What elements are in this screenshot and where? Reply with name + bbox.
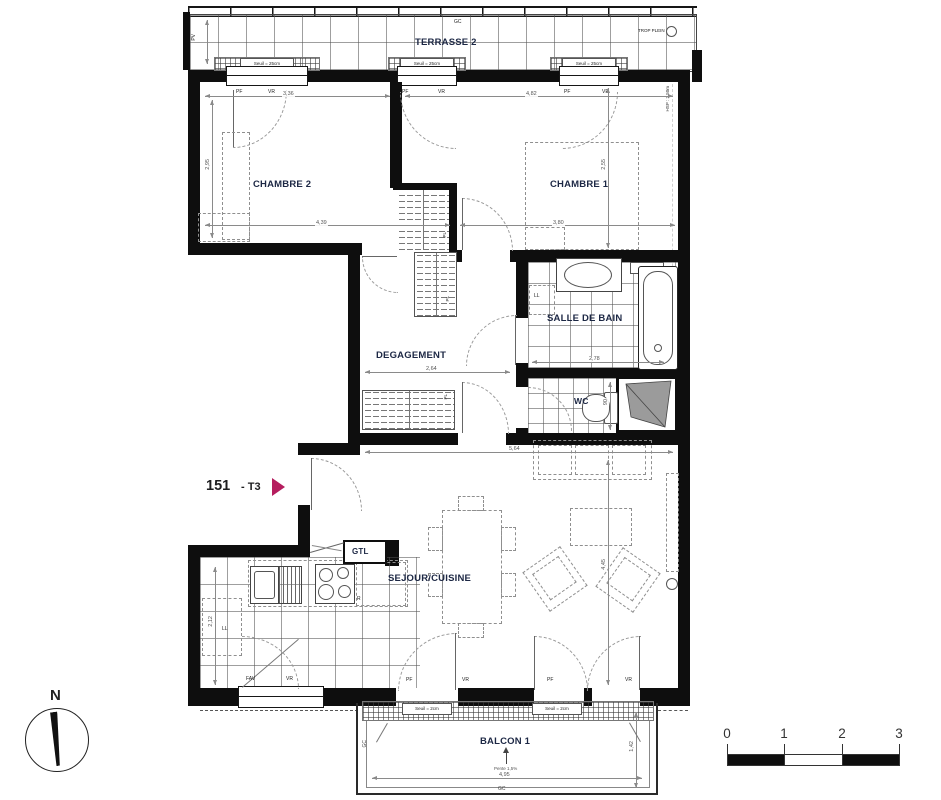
vr-label: VR	[462, 678, 469, 683]
shaft-hatch	[626, 381, 671, 427]
dim-label: 2,78	[588, 356, 601, 362]
door-arc-sejour-b2	[587, 636, 641, 691]
wall-deg-bottom	[348, 433, 458, 445]
dim-label: 4,39	[315, 220, 328, 226]
ll-sdb-label: LL	[534, 294, 540, 299]
door-arc-deg-sejour	[462, 382, 509, 434]
facade-dash	[200, 710, 358, 711]
dim-line	[608, 88, 609, 248]
dim-label: 2,64	[425, 366, 438, 372]
dim-label: 3,80	[552, 220, 565, 226]
hsp-label: HSP : 2,50m	[666, 86, 671, 111]
wall-placard-top	[393, 183, 457, 190]
dim-label: 3,36	[282, 91, 295, 97]
room-label-chambre2: CHAMBRE 2	[253, 180, 311, 190]
kitchen-hob	[315, 564, 355, 604]
door-arc-terrace-ch1a	[400, 92, 456, 149]
vr-label: VR	[625, 678, 632, 683]
washer-sdb	[529, 285, 555, 315]
window-chambre1-right	[559, 66, 619, 86]
kitchen-drainer	[278, 566, 302, 604]
kitchen-window	[238, 686, 324, 708]
door-arc-terrace-ch1b	[562, 92, 618, 149]
dining-chair	[458, 623, 484, 638]
pf-label: PF	[564, 90, 570, 95]
dim-line	[610, 382, 611, 430]
hob-burner	[319, 568, 333, 582]
technical-shaft	[616, 376, 678, 433]
door-arc-sdb	[466, 315, 517, 366]
dim-line	[212, 100, 213, 238]
dim-label: 2,55	[601, 158, 607, 171]
dining-chair	[501, 573, 516, 597]
dim-label: 90	[603, 398, 609, 406]
fridge-outline	[356, 562, 406, 606]
placard-deg-label: PL	[444, 394, 449, 400]
room-label-chambre1: CHAMBRE 1	[550, 180, 608, 190]
door-arc-sejour-b1	[534, 636, 588, 691]
vr-label: VR	[438, 90, 445, 95]
coffee-table	[570, 508, 632, 546]
hob-burner	[337, 567, 349, 579]
scale-number: 1	[774, 726, 794, 741]
dim-label: 5,64	[508, 446, 521, 452]
wall-deg-left	[348, 255, 360, 443]
scale-segments	[727, 754, 900, 766]
pf-label: PF	[236, 90, 242, 95]
sofa-outline	[533, 440, 652, 480]
room-label-degagement: DEGAGEMENT	[376, 351, 446, 361]
dim-line	[215, 567, 216, 685]
scale-bar: 0 1 2 3	[717, 726, 917, 770]
door-leaf	[362, 256, 397, 257]
dim-line	[372, 778, 642, 779]
furniture-chambre2	[198, 213, 250, 242]
wall-segment	[692, 50, 702, 82]
vr-label: VR	[286, 677, 293, 682]
scale-seg-black	[727, 754, 785, 766]
hob-burner	[338, 585, 351, 598]
door-leaf	[455, 633, 456, 690]
dim-line	[460, 225, 675, 226]
placard-upper	[397, 190, 449, 250]
dining-chair	[501, 527, 516, 551]
door-arc-chambre2	[362, 257, 398, 293]
dim-label: 2,95	[205, 158, 211, 171]
scale-number: 0	[717, 726, 737, 741]
scale-seg-white	[784, 754, 843, 766]
ll-kitchen-label: LL	[222, 627, 228, 632]
unit-number: 151	[206, 478, 230, 494]
wall-kitchen-top	[188, 545, 310, 557]
scale-tick	[727, 744, 728, 754]
kitchen-sink-bowl	[254, 571, 275, 599]
wall-chambre2-bottom	[188, 243, 362, 255]
unit-type: - T3	[241, 481, 261, 493]
door-leaf	[515, 315, 516, 365]
placard-lower	[414, 252, 457, 317]
balcony-gc-bottom: GC	[498, 787, 506, 792]
dim-line	[365, 452, 673, 453]
room-label-sejour: SEJOUR/CUISINE	[388, 574, 471, 584]
tv-unit	[666, 473, 679, 572]
dim-label: 4,82	[525, 91, 538, 97]
seuil-label: Seuil = 2cm	[402, 703, 452, 715]
placard-lower-label: PL	[446, 296, 451, 302]
bathtub-drain	[654, 344, 662, 352]
hob-burner	[318, 584, 334, 600]
room-label-sdb: SALLE DE BAIN	[547, 314, 622, 324]
terrace-dim-line	[207, 20, 208, 64]
door-leaf	[462, 382, 463, 433]
wall-placard-right	[449, 183, 457, 252]
door-leaf	[639, 636, 640, 690]
trop-plein-label: TROP PLEIN	[638, 29, 665, 34]
dim-line	[365, 372, 510, 373]
balcony-gc-left: GC	[363, 740, 368, 748]
fav-label: FAV	[246, 677, 255, 682]
room-label-wc: WC	[574, 397, 589, 406]
scale-seg-black	[842, 754, 900, 766]
dim-line	[405, 96, 673, 97]
dining-table	[442, 510, 502, 624]
scale-number: 2	[832, 726, 852, 741]
scale-tick	[842, 744, 843, 754]
wall-entry-horiz	[298, 443, 360, 455]
window-chambre2	[226, 66, 308, 86]
dim-line	[532, 362, 664, 363]
dim-line	[205, 96, 390, 97]
seuil-label: Seuil = 2cm	[532, 703, 582, 715]
scale-number: 3	[889, 726, 909, 741]
trop-plein-icon	[666, 26, 677, 37]
pf-label: PF	[406, 678, 412, 683]
dim-label: 1,42	[629, 740, 635, 753]
dining-chair	[458, 496, 484, 511]
dim-label: 4,95	[498, 772, 511, 778]
dining-chair	[428, 527, 443, 551]
plant-icon	[666, 578, 678, 590]
dim-label: 2,12	[208, 615, 214, 628]
wall-sdb-left-upper	[516, 250, 528, 318]
armchair-left	[522, 546, 587, 612]
vr-label: VR	[268, 90, 275, 95]
room-label-terrasse: TERRASSE 2	[415, 38, 477, 48]
dim-label: 4,45	[601, 558, 607, 571]
unit-arrow	[272, 478, 285, 496]
terrace-gc-label: GC	[454, 20, 462, 25]
pf-label: PF	[547, 678, 553, 683]
door-leaf	[534, 636, 535, 690]
door-leaf	[311, 458, 312, 510]
dim-line	[636, 712, 637, 788]
scale-tick	[784, 744, 785, 754]
scale-tick	[899, 744, 900, 754]
floor-plan-canvas: GC TERRASSE 2 TROP PLEIN PV Seuil = 25cm…	[0, 0, 941, 800]
north-label: N	[50, 688, 61, 703]
door-arc-entrance	[311, 458, 362, 511]
dim-line	[608, 460, 609, 685]
window-chambre1-left	[397, 66, 457, 86]
room-label-balcon: BALCON 1	[480, 737, 530, 747]
facade-dash	[658, 710, 688, 711]
placard-upper-label: PL	[443, 232, 448, 238]
pente-label: Pente 1,5%	[494, 767, 517, 772]
wall-kitchen-left	[188, 545, 200, 693]
pv-label: PV	[192, 34, 197, 41]
wall-right	[678, 70, 690, 705]
placard-degagement	[362, 390, 455, 430]
nightstand-chambre1	[525, 227, 565, 250]
washbasin	[564, 262, 612, 288]
gtl-label: GTL	[352, 548, 369, 556]
wall-segment	[183, 12, 190, 70]
pente-arrowhead	[503, 747, 509, 753]
fridge-label: R	[357, 597, 361, 602]
armchair-right	[595, 547, 660, 613]
